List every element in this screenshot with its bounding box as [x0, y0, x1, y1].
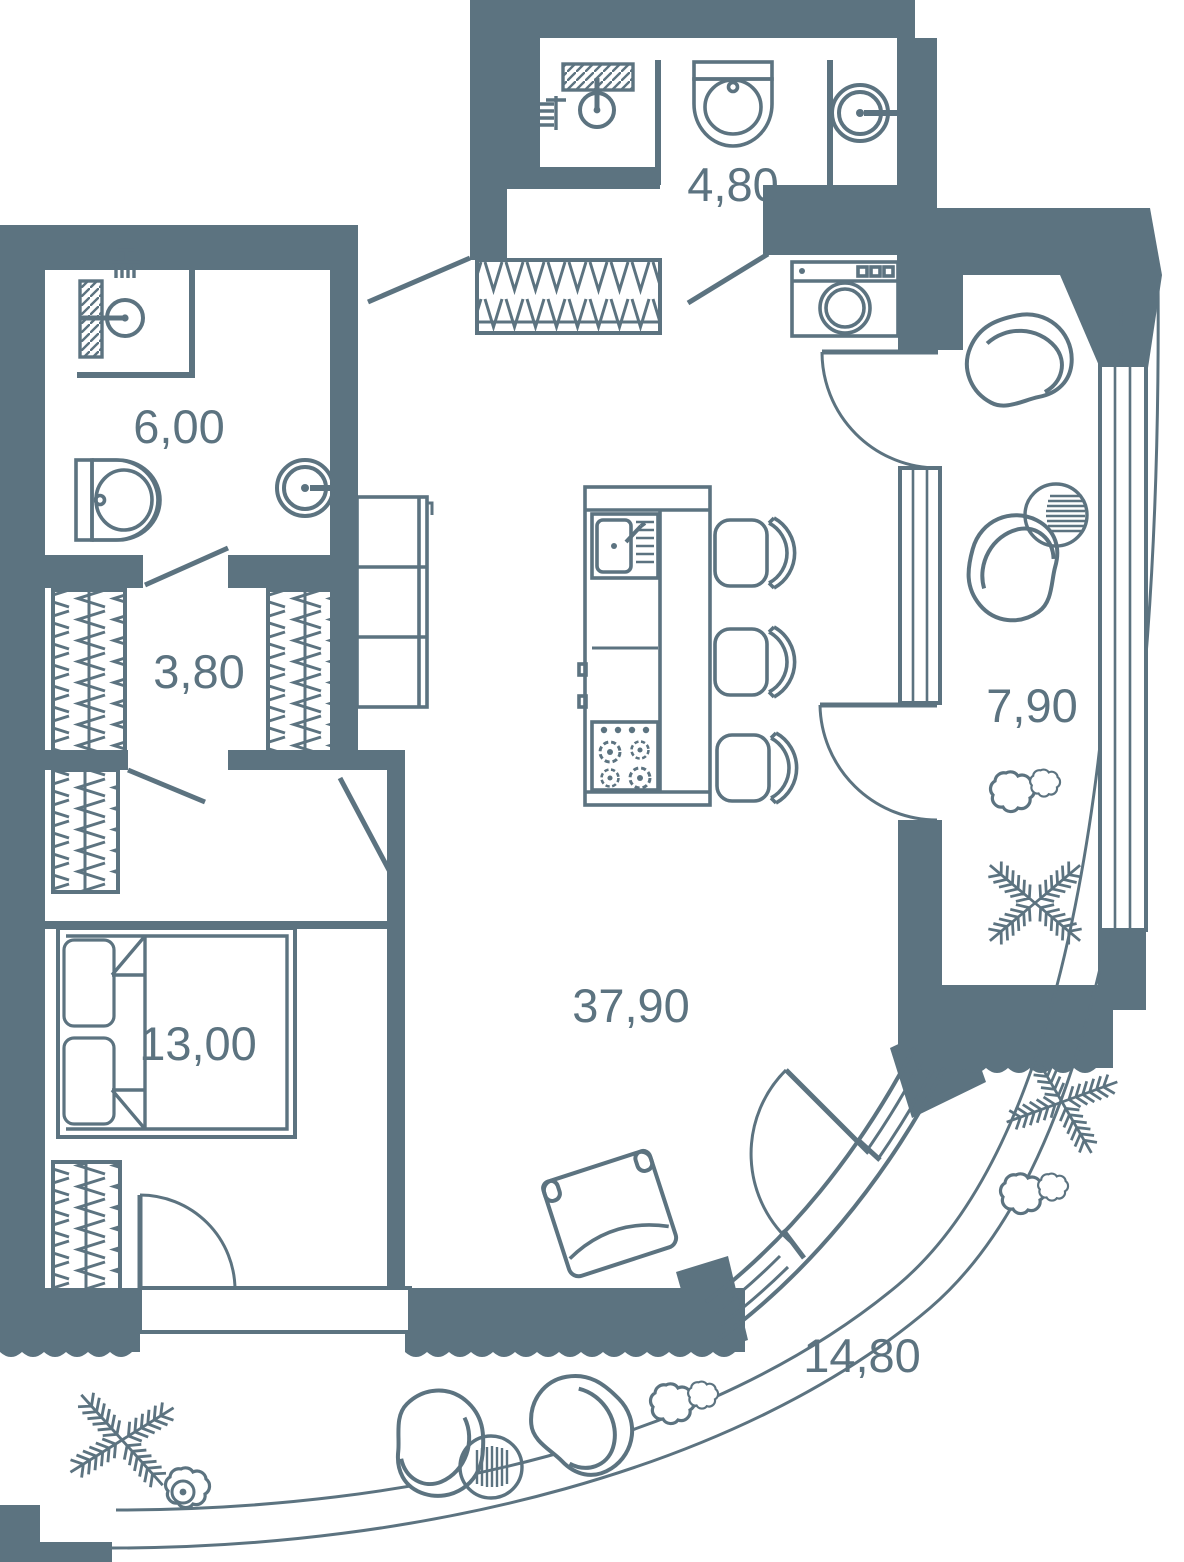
island-stub	[579, 696, 586, 707]
door-hallway-leaf	[128, 770, 205, 802]
glass-mullions	[783, 1140, 880, 1258]
plant-flower	[166, 1468, 210, 1508]
wall-bedroom-south-pier	[45, 1288, 140, 1352]
tall-cabinet	[357, 497, 432, 707]
wall-top-block-pier-lower	[470, 175, 507, 260]
shower-icon	[538, 96, 566, 130]
bathroom-top-fixtures	[538, 62, 897, 146]
armchair	[541, 1149, 678, 1279]
plant-monstera	[62, 1385, 182, 1495]
wardrobe-left	[53, 590, 125, 752]
plant-pair	[1001, 1174, 1069, 1214]
balustrade-outer	[112, 275, 1158, 1548]
wall-bath-bottom-right	[228, 555, 358, 588]
wall-bath-bottom-left	[0, 555, 143, 588]
wall-top	[470, 0, 915, 38]
wall-scallop-bedroom	[0, 1352, 140, 1357]
room-label-living: 37,90	[572, 979, 690, 1032]
door-loggia-upper	[822, 352, 938, 468]
lounge-chair	[961, 307, 1077, 415]
doors	[128, 254, 938, 1290]
wardrobe-lower-left	[53, 770, 118, 892]
wall-under-bath	[763, 185, 898, 255]
glass-band-inner-edge	[706, 1048, 914, 1302]
room-label-bathroom-left: 6,00	[133, 400, 224, 453]
wall-scallop-living	[405, 1352, 745, 1357]
round-sink-icon	[832, 85, 897, 141]
kitchen-island	[579, 487, 710, 805]
bar-stool	[717, 733, 797, 803]
bar-stool	[715, 627, 795, 697]
door-entry-leaf	[368, 258, 470, 302]
room-label-bathroom-top: 4,80	[687, 158, 778, 211]
island-stub	[579, 664, 586, 675]
room-label-hallway: 3,80	[153, 645, 244, 698]
living-fixtures	[541, 1149, 678, 1279]
wardrobe-right	[268, 590, 342, 752]
wall-bedroom-living-divider	[387, 750, 405, 1295]
entry-fixtures	[477, 260, 898, 336]
plant-pair	[991, 770, 1061, 812]
door-bathroom-left-leaf	[145, 548, 228, 585]
toilet-icon	[694, 62, 772, 146]
door-bedroom-terrace	[140, 1195, 235, 1290]
loggia-fixtures	[946, 307, 1088, 950]
door-living-terrace	[751, 1070, 869, 1244]
hallway-wardrobes	[53, 590, 342, 892]
door-loggia-lower	[820, 705, 937, 820]
lounge-chair	[946, 498, 1083, 637]
bar-stool	[715, 518, 795, 588]
window-loggia-west	[900, 468, 940, 703]
balustrade	[112, 275, 1158, 1548]
pillow	[64, 1038, 114, 1124]
pillow	[64, 940, 114, 1026]
wall-loggia-ne-pier	[1060, 275, 1162, 368]
slatted-table	[1025, 484, 1087, 546]
wall-left-exterior	[0, 270, 45, 1352]
room-label-bedroom: 13,00	[139, 1017, 257, 1070]
wall-loggia-bottom	[898, 985, 1113, 1068]
door-vestibule-living-leaf	[340, 778, 390, 872]
plant-monstera	[983, 857, 1087, 950]
kitchen-fixtures	[357, 487, 797, 805]
window-loggia-east	[1100, 365, 1146, 930]
wall-loggia-west-lower	[898, 820, 942, 985]
wall-loggia-door-block	[898, 255, 963, 350]
wall-terrace-sw-pier	[0, 1505, 112, 1562]
wardrobe-bedroom	[53, 1162, 120, 1290]
room-label-loggia: 7,90	[986, 679, 1077, 732]
window-bedroom-south	[140, 1288, 410, 1332]
room-label-terrace: 14,80	[803, 1329, 921, 1382]
bedroom-fixtures	[53, 928, 295, 1290]
floor-plan-svg: 4,80 6,00 3,80 13,00 37,90 7,90 14,80	[0, 0, 1184, 1562]
toilet-icon-left	[76, 460, 160, 540]
terrace-fixtures	[62, 1041, 1127, 1511]
bathroom-left-fixtures	[76, 250, 333, 540]
wall-shower-partition	[505, 167, 660, 189]
wall-left-block-top	[0, 225, 352, 270]
lounge-chair	[517, 1358, 646, 1492]
door-bathroom-top-leaf	[688, 254, 768, 303]
entry-wardrobe	[477, 260, 660, 333]
floor-plan: 4,80 6,00 3,80 13,00 37,90 7,90 14,80	[0, 0, 1184, 1562]
washing-machine-icon	[792, 262, 898, 336]
round-sink-icon-left	[277, 460, 333, 516]
wall-top-right	[897, 38, 937, 213]
plant-pair	[651, 1382, 719, 1424]
